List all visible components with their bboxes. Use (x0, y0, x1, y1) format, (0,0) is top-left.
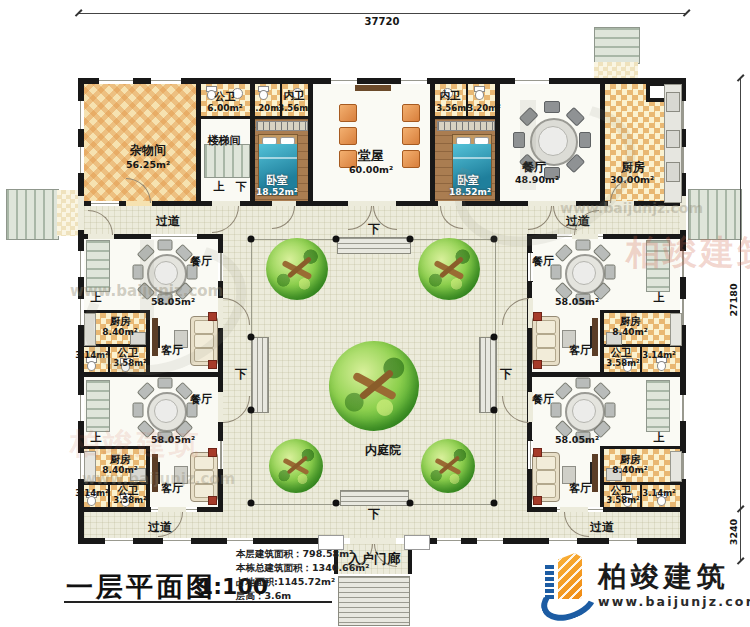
lu-wc-area: 3.58m² (113, 359, 147, 368)
wall (78, 446, 150, 449)
room-area-public-wc: 6.00m² (207, 104, 243, 113)
tree (421, 439, 475, 493)
ll-wc-label: 公卫 (118, 485, 139, 496)
window (608, 538, 638, 544)
wall (600, 446, 686, 449)
dining-set-main (507, 95, 597, 185)
lu-wc-area-small: 3.14m² (75, 351, 109, 360)
ll-kitchen-area: 8.40m² (102, 466, 138, 475)
wall (600, 78, 605, 206)
column-dot (333, 236, 340, 243)
ru-living-label: 客厅 (569, 345, 591, 356)
room-label-stairwell: 楼梯间 (208, 135, 241, 146)
stat-story-height-label: 层高： (236, 590, 265, 601)
chair (339, 104, 357, 122)
room-area-bedroom-left: 18.52m² (256, 188, 298, 197)
brand-name: 柏竣建筑 (598, 558, 730, 596)
courtyard-steps-left (251, 337, 269, 413)
wall (196, 78, 201, 206)
column-dot (248, 334, 255, 341)
rl-kitchen-label: 厨房 (620, 454, 641, 465)
threshold (404, 535, 430, 550)
room-label-public-wc: 公卫 (215, 91, 236, 102)
room-area-inner-wc-left-b: 3.56m² (278, 104, 312, 113)
wall (430, 116, 500, 119)
room-label-inner-wc-left: 内卫 (284, 90, 305, 101)
column-dot (248, 500, 255, 507)
ru-dining-area: 58.05m² (555, 297, 599, 307)
ru-stairs-up: 上 (654, 292, 665, 303)
column-dot (333, 500, 340, 507)
lu-dining-label: 餐厅 (190, 256, 212, 267)
dimension-line-top (78, 13, 686, 14)
courtyard-steps-top (337, 237, 411, 254)
rl-wc-area-small: 3.14m² (642, 489, 676, 498)
window (330, 78, 358, 84)
title-underline (64, 601, 332, 603)
wall (308, 78, 313, 206)
ru-wc-area: 3.58m² (606, 359, 640, 368)
window (226, 538, 254, 544)
wall (78, 482, 150, 485)
external-landing-left (57, 190, 78, 236)
kitchen-appliance (666, 162, 680, 182)
chair (402, 127, 420, 145)
tree-large (329, 341, 419, 431)
window (218, 252, 223, 282)
kitchen-appliance (666, 130, 680, 148)
wall (495, 78, 500, 206)
dimension-tick (683, 9, 690, 16)
tree (266, 238, 328, 300)
lu-wc-label: 公卫 (118, 347, 139, 358)
column-dot (407, 236, 414, 243)
corridor-label-tl: 过道 (156, 215, 180, 227)
stat-total-area-label: 本栋总建筑面积： (236, 562, 312, 573)
column-dot (491, 407, 498, 414)
unit-stairs-lu (86, 240, 110, 292)
plan-title: 一层平面图 (66, 569, 216, 605)
rl-wc-area: 3.58m² (606, 496, 640, 505)
floor-plan: 杂物间 56.25m² 公卫 6.00m² 内卫 3.20m² 3.56m² 楼… (0, 0, 750, 627)
column-dot (248, 407, 255, 414)
unit-stairs-rl (646, 380, 670, 432)
rl-dining-label: 餐厅 (532, 394, 554, 405)
living-set-rl (532, 450, 600, 508)
ll-wc-area: 3.58m² (113, 496, 147, 505)
brand-logo-icon (542, 553, 594, 615)
stat-floor-area-value: 798.58m² (303, 548, 354, 559)
window (104, 538, 134, 544)
stat-total-area: 本栋总建筑面积：1340.66m² (236, 562, 369, 575)
dimension-right-main-value: 27180 (729, 283, 739, 316)
lu-kitchen-area: 8.40m² (102, 328, 138, 337)
living-set-ll (150, 450, 218, 508)
courtyard-down-top: 下 (368, 223, 380, 235)
room-area-storage: 56.25m² (126, 160, 170, 170)
external-landing-top (594, 62, 638, 78)
kitchen-counter (84, 313, 96, 346)
rl-stairs-up: 上 (654, 432, 665, 443)
dimension-top-value: 37720 (365, 17, 400, 27)
column-dot (491, 500, 498, 507)
room-label-storage: 杂物间 (130, 144, 166, 156)
window (514, 78, 550, 84)
window (436, 538, 462, 544)
courtyard-down-left: 下 (235, 368, 247, 380)
courtyard-down-bottom: 下 (368, 508, 380, 520)
ll-stairs-up: 上 (91, 432, 102, 443)
courtyard-down-right: 下 (500, 368, 512, 380)
courtyard-label: 内庭院 (365, 444, 401, 456)
ru-wc-area-small: 3.14m² (642, 351, 676, 360)
stat-story-height: 层高：3.6m (236, 590, 291, 603)
dimension-tick (737, 557, 744, 564)
window (78, 100, 84, 130)
kitchen-appliance (666, 92, 680, 112)
room-area-main-dining: 48.90m² (515, 175, 559, 185)
ll-living-label: 客厅 (161, 483, 183, 494)
window (90, 201, 120, 206)
stairwell-down: 下 (236, 181, 247, 192)
corridor-label-br: 过道 (590, 521, 614, 533)
room-label-bedroom-left: 卧室 (266, 175, 288, 186)
room-label-bedroom-right: 卧室 (457, 175, 479, 186)
window (476, 538, 504, 544)
tree (269, 439, 323, 493)
ll-kitchen-label: 厨房 (110, 454, 131, 465)
ru-kitchen-area: 8.40m² (612, 328, 648, 337)
window (680, 394, 686, 422)
chair (339, 127, 357, 145)
room-area-bedroom-right: 18.52m² (449, 188, 491, 197)
room-area-main-kitchen: 30.00m² (610, 175, 654, 185)
stat-total-area-value: 1340.66m² (312, 562, 369, 573)
door-opening (78, 196, 84, 230)
room-label-main-dining: 餐厅 (522, 161, 546, 173)
dimension-right-porch-value: 3240 (729, 519, 739, 545)
ru-kitchen-label: 厨房 (620, 316, 641, 327)
unit-stairs-ru (646, 240, 670, 292)
dimension-line-right (740, 78, 741, 561)
wall (430, 78, 435, 206)
window (78, 250, 84, 278)
stat-floor-area: 本层建筑面积：798.58m² (236, 548, 353, 561)
unit-stairs-ll (86, 380, 110, 432)
room-label-inner-wc-right: 内卫 (440, 90, 461, 101)
lu-stairs-up: 上 (91, 292, 102, 303)
room-label-hall: 堂屋 (358, 149, 384, 162)
wall (600, 310, 604, 372)
tree (418, 238, 480, 300)
window (680, 250, 686, 278)
toilet (474, 86, 483, 99)
kitchen-counter (670, 313, 682, 346)
window (400, 78, 428, 84)
toilet (258, 86, 267, 99)
stat-land-area-value: 1145.72m² (278, 576, 335, 587)
column-dot (407, 500, 414, 507)
lu-living-label: 客厅 (161, 345, 183, 356)
stat-land-area: 占地面积:1145.72m² (236, 576, 335, 589)
lu-kitchen-label: 厨房 (110, 316, 131, 327)
room-area-inner-wc-right-b: 3.20m² (467, 104, 501, 113)
kitchen-counter (670, 451, 682, 482)
window (218, 440, 223, 470)
corridor-label-tr: 过道 (566, 215, 590, 227)
courtyard-steps-bottom (340, 490, 409, 506)
corridor-label-bl: 过道 (148, 521, 172, 533)
lu-dining-area: 58.05m² (151, 297, 195, 307)
rl-dining-area: 58.05m² (555, 435, 599, 445)
window (150, 78, 182, 84)
stairwell-up: 上 (214, 181, 225, 192)
courtyard-steps-right (479, 337, 497, 413)
window (78, 146, 84, 174)
rl-wc-label: 公卫 (611, 485, 632, 496)
wall (196, 116, 313, 119)
stat-story-height-value: 3.6m (265, 590, 292, 601)
ll-wc-area-small: 3.14m² (75, 489, 109, 498)
wardrobe (437, 121, 495, 131)
window (548, 538, 578, 544)
brand-website: www.baijunjz.com (598, 594, 750, 609)
rl-living-label: 客厅 (569, 483, 591, 494)
wardrobe (256, 121, 308, 131)
window (162, 538, 192, 544)
room-area-inner-wc-right-a: 3.56m² (436, 104, 470, 113)
column-dot (491, 236, 498, 243)
external-stair-right (688, 189, 742, 240)
room-label-main-kitchen: 厨房 (621, 161, 645, 173)
entrance-steps (338, 576, 410, 626)
wall (250, 78, 255, 206)
window (98, 78, 134, 84)
room-area-hall: 60.00m² (349, 165, 393, 175)
rl-kitchen-area: 8.40m² (612, 466, 648, 475)
external-stair-top (594, 27, 640, 64)
ll-dining-area: 58.05m² (151, 435, 195, 445)
column-dot (491, 334, 498, 341)
ru-wc-label: 公卫 (611, 347, 632, 358)
stairwell-stairs (204, 144, 250, 178)
stat-land-area-label: 占地面积: (236, 576, 278, 587)
external-stair-left (6, 189, 59, 240)
chair (402, 150, 420, 168)
chair (402, 104, 420, 122)
stat-floor-area-label: 本层建筑面积： (236, 548, 303, 559)
window (78, 394, 84, 422)
wall (600, 446, 604, 507)
ru-dining-label: 餐厅 (532, 256, 554, 267)
kitchen-counter (84, 451, 96, 482)
column-dot (248, 236, 255, 243)
ll-dining-label: 餐厅 (190, 394, 212, 405)
altar-table (355, 85, 391, 91)
